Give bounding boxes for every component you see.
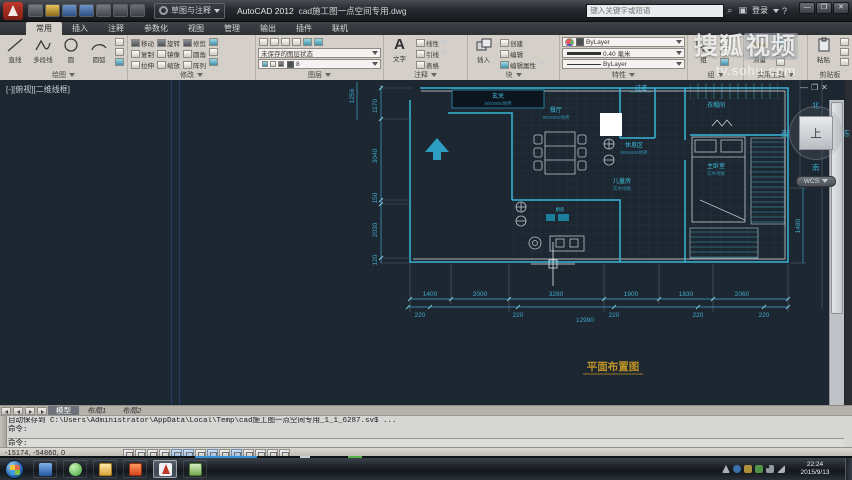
text-icon: A (394, 37, 405, 52)
layer-dropdown[interactable]: 8 (258, 59, 381, 69)
wcs-menu[interactable]: WCS (796, 176, 836, 187)
panel-draw-footer[interactable]: 绘图 (0, 71, 127, 80)
viewcube-west[interactable]: 西 (781, 128, 789, 139)
edit-attr-button[interactable]: 编辑属性 (499, 59, 545, 70)
room-label: 休息区 (625, 141, 643, 149)
system-tray: 22:24 2015/9/13 (722, 458, 852, 480)
signin-link[interactable]: 登录 (752, 5, 768, 16)
autocad-window: 草图与注释 AutoCAD 2012 cad施工图一点空间专用.dwg ⌕ ▣ … (0, 0, 852, 480)
copy-button[interactable]: 复制 (130, 48, 154, 59)
room-sub-label: 实木地板 (613, 185, 631, 192)
exchange-icon[interactable]: ▣ (738, 5, 747, 16)
edit-attr-icon (500, 61, 509, 69)
next-tab-button[interactable] (25, 407, 35, 415)
video-progress-strip (0, 456, 852, 458)
measure-icon (751, 37, 769, 53)
taskbar-clock[interactable]: 22:24 2015/9/13 (792, 461, 838, 477)
layout-tab-bar: 模型 布局1 布局2 (0, 405, 852, 415)
explode-icon[interactable] (209, 48, 218, 56)
layer-state-dropdown[interactable]: 未保存的图层状态 (258, 48, 381, 58)
copy-clip-icon[interactable] (840, 48, 849, 56)
viewcube-south[interactable]: 南 (812, 162, 820, 173)
panel-modify: 移动 复制 拉伸 旋转 镜像 缩放 修剪 圆角 阵列 (128, 35, 256, 80)
svg-text:1400: 1400 (423, 291, 438, 298)
viewcube-east[interactable]: 东 (843, 128, 851, 139)
offset-icon[interactable] (209, 58, 218, 66)
tray-security-icon[interactable] (755, 465, 763, 473)
match-properties-icon[interactable] (840, 58, 849, 66)
panel-block-footer[interactable]: 块 (468, 71, 559, 80)
taskbar-app-notes[interactable] (183, 460, 207, 478)
viewcube-top-face[interactable]: 上 (799, 116, 833, 150)
array-button[interactable]: 阵列 (182, 59, 206, 70)
tray-network-icon[interactable] (777, 465, 785, 473)
quick-calc-icon[interactable] (776, 58, 785, 66)
selected-block[interactable] (600, 113, 622, 136)
circle-icon (62, 37, 80, 53)
panel-clipboard-footer[interactable]: 剪贴板 (808, 71, 852, 80)
rotate-button[interactable]: 旋转 (156, 37, 180, 48)
layer-freeze-icon[interactable] (292, 38, 301, 46)
fillet-icon (183, 50, 192, 58)
tray-help-icon[interactable] (733, 465, 741, 473)
text-button[interactable]: A 文字 (386, 37, 413, 63)
first-tab-button[interactable] (1, 407, 11, 415)
viewport-controls[interactable]: [-][俯视][二维线框] (6, 84, 70, 95)
room-label: 玄关 (492, 92, 504, 100)
taskbar-app-explorer[interactable] (93, 460, 117, 478)
copy-icon (131, 50, 140, 58)
room-sub-label: 实木地板 (707, 170, 725, 177)
rotate-icon (157, 39, 166, 47)
edit-block-icon (500, 50, 509, 58)
ribbon-tab-bar: 常用 插入 注释 参数化 视图 管理 输出 插件 联机 (0, 22, 852, 35)
windows-taskbar: 22:24 2015/9/13 (0, 458, 852, 480)
command-window[interactable]: 自动保存到 C:\Users\Administrator\AppData\Loc… (0, 415, 852, 447)
dropdown-caret-icon (673, 50, 682, 57)
group-button[interactable]: 组 (690, 37, 717, 64)
tab-manage[interactable]: 管理 (214, 22, 250, 35)
circle-button[interactable]: 圆 (58, 37, 84, 64)
tray-update-icon[interactable] (744, 465, 752, 473)
last-tab-button[interactable] (37, 407, 47, 415)
search-icon[interactable]: ⌕ (727, 5, 732, 16)
linetype-icon (567, 64, 601, 65)
svg-text:2000: 2000 (473, 291, 488, 298)
mirror-button[interactable]: 镜像 (156, 48, 180, 59)
tray-show-hidden-icon[interactable] (722, 465, 730, 473)
group-icon (695, 37, 713, 53)
show-desktop-button[interactable] (845, 458, 852, 480)
room-label: 衣帽间 (707, 101, 725, 109)
svg-text:1256: 1256 (349, 88, 356, 103)
panel-block: 插入 创建 编辑 编辑属性 块 (468, 35, 560, 80)
entry-wall (448, 113, 512, 200)
group-select-icon[interactable] (720, 58, 729, 66)
id-point-icon[interactable] (776, 38, 785, 46)
scale-icon (157, 61, 166, 69)
taskbar-app-autocad[interactable] (153, 460, 177, 478)
save-as-icon[interactable] (79, 4, 94, 17)
lock-icon (278, 61, 284, 67)
panel-caret-icon (513, 72, 522, 79)
hatch-icon[interactable] (115, 58, 124, 66)
help-search: ⌕ ▣ 登录 ? (586, 4, 790, 18)
dropdown-caret-icon (369, 61, 378, 68)
edit-block-button[interactable]: 编辑 (499, 48, 545, 59)
svg-text:2060: 2060 (735, 291, 750, 298)
panel-layers: 未保存的图层状态 8 图层 (256, 35, 384, 80)
signin-caret-icon[interactable] (770, 6, 779, 15)
svg-text:120: 120 (372, 254, 379, 265)
svg-text:2030: 2030 (372, 222, 379, 237)
rectangle-icon[interactable] (115, 38, 124, 46)
window-controls: — ❐ ✕ (798, 2, 849, 14)
color-dropdown[interactable]: ByLayer (562, 37, 685, 47)
bay-window-hatch (690, 228, 758, 258)
table-button[interactable]: 表格 (415, 59, 448, 70)
svg-text:1480: 1480 (795, 218, 802, 233)
wcs-caret-icon (819, 178, 828, 185)
bottom-dimensions: 1400 2000 3280 1900 1830 2060 220 220 22… (406, 264, 790, 324)
move-button[interactable]: 移动 (130, 37, 154, 48)
quick-select-icon[interactable] (776, 48, 785, 56)
viewcube-north[interactable]: 北 (812, 100, 820, 111)
polyline-icon (34, 37, 52, 53)
bulb-icon (262, 61, 268, 67)
ellipse-icon[interactable] (115, 48, 124, 56)
ribbon: 直线 多段线 圆 圆弧 (0, 35, 852, 80)
fillet-button[interactable]: 圆角 (182, 48, 206, 59)
save-icon[interactable] (62, 4, 77, 17)
title-bar: 草图与注释 AutoCAD 2012 cad施工图一点空间专用.dwg ⌕ ▣ … (0, 0, 852, 22)
mirror-icon (157, 50, 166, 58)
search-input[interactable] (586, 4, 724, 18)
layer-off-icon[interactable] (270, 38, 279, 46)
stretch-icon (131, 61, 140, 69)
workspace-switcher[interactable]: 草图与注释 (154, 3, 225, 19)
doc-restore-button[interactable]: ❐ (811, 83, 818, 92)
insert-block-button[interactable]: 插入 (470, 37, 497, 64)
new-file-icon[interactable] (28, 4, 43, 17)
command-history: 自动保存到 C:\Users\Administrator\AppData\Loc… (8, 417, 844, 436)
panel-clipboard: 粘贴 剪贴板 (808, 35, 852, 80)
panel-caret-icon (715, 72, 724, 79)
help-icon[interactable]: ? (782, 6, 787, 16)
workspace-caret-icon (211, 6, 220, 15)
svg-text:1170: 1170 (372, 99, 379, 113)
leader-button[interactable]: 引线 (415, 48, 448, 59)
layer-properties-icon[interactable] (259, 38, 268, 46)
viewcube[interactable]: 上 北 南 西 东 WCS (786, 102, 848, 184)
tab-insert[interactable]: 插入 (62, 22, 98, 35)
cut-icon[interactable] (840, 38, 849, 46)
window-title: AutoCAD 2012 cad施工图一点空间专用.dwg (237, 5, 407, 17)
room-label: 儿童房 (613, 177, 631, 185)
line-icon (6, 37, 24, 53)
panel-layers-footer[interactable]: 图层 (256, 71, 383, 80)
erase-icon[interactable] (209, 38, 218, 46)
layer-tools-row (258, 37, 381, 47)
room-label: 厨房 (556, 206, 565, 213)
tab-model[interactable]: 模型 (48, 406, 79, 416)
dropdown-caret-icon (439, 39, 448, 46)
room-sub-label: 800X800地砖 (620, 149, 648, 156)
drawing-window-controls: — ❐ ✕ (800, 83, 828, 92)
array-icon (183, 61, 192, 69)
room-sub-label: 800X800地砖 (542, 114, 570, 121)
paste-icon (815, 37, 833, 53)
dropdown-caret-icon (536, 61, 545, 68)
panel-caret-icon (194, 72, 203, 79)
drawing-title: 平面布置图 (587, 360, 640, 373)
room-label: 主卧室 (707, 162, 725, 170)
entry-arrow (425, 138, 449, 160)
wardrobe (751, 138, 785, 224)
autocad-logo-button[interactable] (3, 2, 23, 20)
panel-caret-icon (785, 72, 794, 79)
tab-online[interactable]: 联机 (322, 22, 358, 35)
svg-text:220: 220 (513, 312, 524, 319)
stretch-button[interactable]: 拉伸 (130, 59, 154, 70)
panel-draw: 直线 多段线 圆 圆弧 (0, 35, 128, 80)
sun-icon (270, 61, 276, 67)
svg-text:3040: 3040 (372, 148, 379, 163)
dropdown-caret-icon (673, 39, 682, 46)
tab-plugins[interactable]: 插件 (286, 22, 322, 35)
linetype-dropdown[interactable]: ByLayer (562, 59, 685, 69)
insert-block-icon (475, 37, 493, 53)
panel-group: 组 组 (688, 35, 744, 80)
arc-icon (90, 37, 108, 53)
panel-properties: ByLayer 0.40 毫米 ByLayer 特性 (560, 35, 688, 80)
doc-close-button[interactable]: ✕ (821, 83, 828, 92)
color-swatch (576, 38, 584, 46)
svg-text:220: 220 (609, 312, 620, 319)
plot-icon[interactable] (96, 4, 111, 17)
svg-text:1900: 1900 (624, 291, 639, 298)
dropdown-caret-icon (369, 50, 378, 57)
tab-annotate[interactable]: 注释 (98, 22, 134, 35)
svg-text:220: 220 (415, 312, 426, 319)
undo-icon[interactable] (113, 4, 128, 17)
trim-icon (183, 39, 192, 47)
svg-text:220: 220 (693, 312, 704, 319)
trim-button[interactable]: 修剪 (182, 37, 206, 48)
panel-utilities: 测量 实用工具 (744, 35, 808, 80)
move-icon (131, 39, 140, 47)
tab-view[interactable]: 视图 (178, 22, 214, 35)
panel-group-footer[interactable]: 组 (688, 71, 743, 80)
layer-isolate-icon[interactable] (281, 38, 290, 46)
create-block-icon (500, 39, 509, 47)
tab-home[interactable]: 常用 (26, 22, 62, 35)
command-window-grip[interactable] (0, 416, 7, 448)
color-wheel-icon (565, 38, 574, 47)
panel-caret-icon (322, 72, 331, 79)
linear-dim-icon (416, 39, 425, 47)
close-button[interactable]: ✕ (833, 2, 849, 14)
floor-plan-drawing[interactable]: 玄关 800X800地砖 (0, 80, 852, 405)
svg-text:150: 150 (372, 192, 379, 203)
open-file-icon[interactable] (45, 4, 60, 17)
left-dimensions: 1256 1170 3040 150 2030 120 (349, 82, 412, 265)
scale-button[interactable]: 缩放 (156, 59, 180, 70)
group-edit-icon[interactable] (720, 48, 729, 56)
room-label: 餐厅 (550, 106, 562, 114)
maximize-button[interactable]: ❐ (816, 2, 832, 14)
tab-output[interactable]: 输出 (250, 22, 286, 35)
tab-layout1[interactable]: 布局1 (79, 406, 114, 416)
panel-modify-footer[interactable]: 修改 (128, 71, 255, 80)
linear-dim-button[interactable]: 线性 (415, 37, 448, 48)
panel-caret-icon (428, 72, 437, 79)
panel-annotate-footer[interactable]: 注释 (384, 71, 467, 80)
panel-caret-icon (626, 72, 635, 79)
layer-color-swatch (287, 61, 294, 68)
start-button[interactable] (5, 460, 24, 479)
layer-lock-icon[interactable] (303, 38, 312, 46)
redo-icon[interactable] (130, 4, 145, 17)
taskbar-app-browser[interactable] (63, 460, 87, 478)
svg-text:12990: 12990 (576, 317, 594, 324)
lineweight-dropdown[interactable]: 0.40 毫米 (562, 48, 685, 58)
layer-match-icon[interactable] (314, 38, 323, 46)
workspace-gear-icon (159, 6, 168, 15)
svg-text:3280: 3280 (549, 291, 564, 298)
svg-text:1830: 1830 (679, 291, 694, 298)
tab-parametric[interactable]: 参数化 (134, 22, 178, 35)
line-button[interactable]: 直线 (2, 37, 28, 64)
doc-minimize-button[interactable]: — (800, 83, 808, 92)
drawing-canvas[interactable]: 玄关 800X800地砖 (0, 80, 852, 405)
minimize-button[interactable]: — (799, 2, 815, 14)
room-sub-label: 800X800地砖 (484, 100, 512, 107)
measure-button[interactable]: 测量 (746, 37, 773, 64)
paste-button[interactable]: 粘贴 (810, 37, 837, 64)
leader-icon (416, 50, 425, 58)
create-block-button[interactable]: 创建 (499, 37, 545, 48)
lineweight-icon (567, 52, 601, 55)
panel-properties-footer[interactable]: 特性 (560, 71, 687, 80)
panel-caret-icon (66, 72, 75, 79)
panel-annotate: A 文字 线性 引线 表格 注释 (384, 35, 468, 80)
tray-volume-icon[interactable] (766, 465, 774, 473)
prev-tab-button[interactable] (13, 407, 23, 415)
room-label: 过道 (635, 84, 647, 92)
taskbar-app-video[interactable] (123, 460, 147, 478)
ungroup-icon[interactable] (720, 38, 729, 46)
taskbar-app-messenger[interactable] (33, 460, 57, 478)
dropdown-caret-icon (439, 50, 448, 57)
tab-layout2[interactable]: 布局2 (114, 406, 149, 416)
panel-utilities-footer[interactable]: 实用工具 (744, 71, 807, 80)
dropdown-caret-icon (673, 61, 682, 68)
svg-text:220: 220 (759, 312, 770, 319)
table-icon (416, 61, 425, 69)
arc-button[interactable]: 圆弧 (86, 37, 112, 64)
workspace-label: 草图与注释 (171, 5, 211, 16)
polyline-button[interactable]: 多段线 (30, 37, 56, 64)
